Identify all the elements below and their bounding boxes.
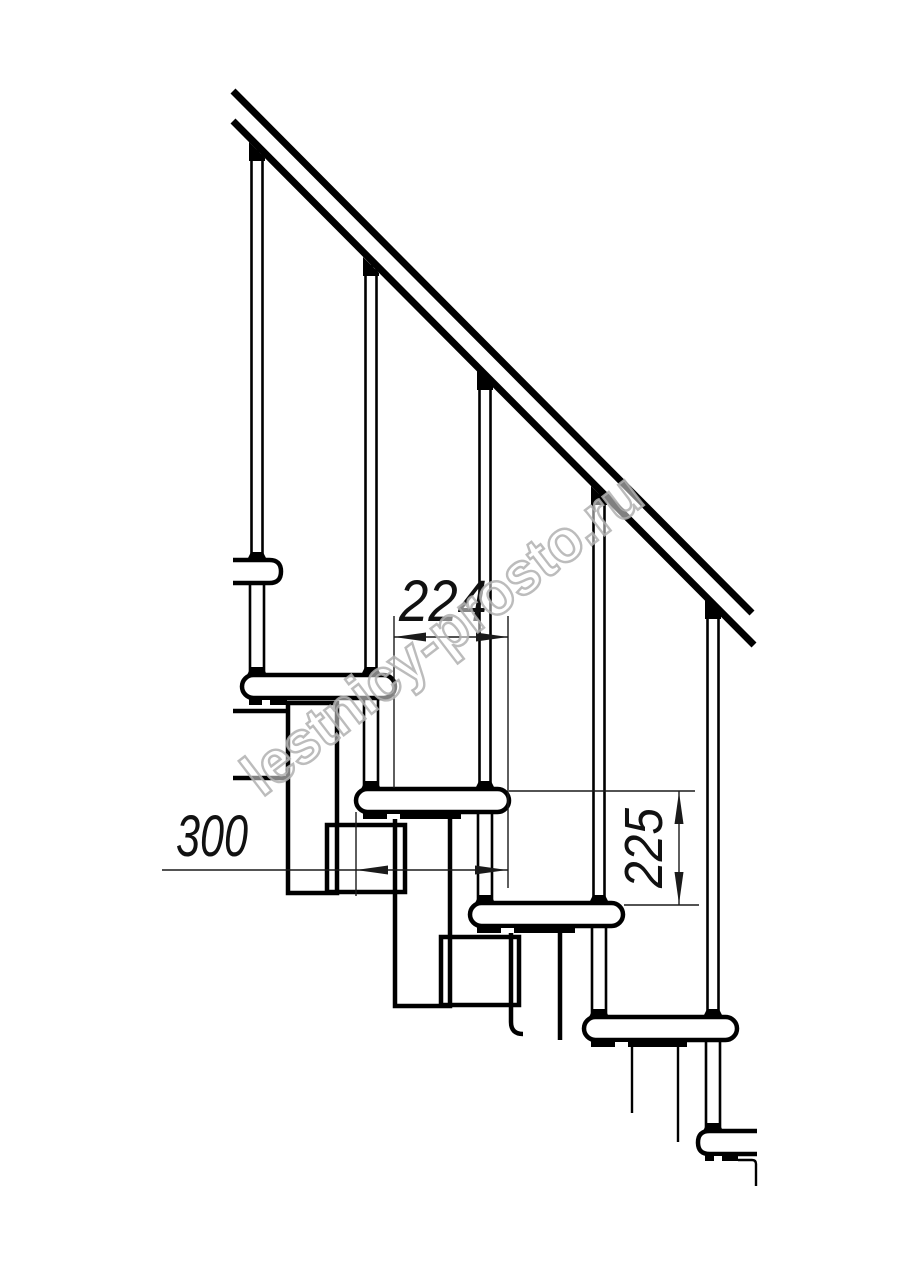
handrail-top-line — [233, 91, 752, 613]
baluster-4 — [592, 495, 606, 1017]
baluster-1 — [250, 151, 264, 675]
tread-3 — [470, 903, 623, 926]
dimension-label-300: 300 — [176, 804, 248, 869]
tread-2 — [356, 789, 509, 812]
staircase-drawing-page: 224 300 225 lestnicy-prosto.ru — [0, 0, 914, 1280]
staircase-drawing-svg: 224 300 225 lestnicy-prosto.ru — [0, 0, 914, 1280]
module-fragment-line-3 — [738, 1160, 756, 1186]
tread-5-cut — [698, 1131, 757, 1154]
tread-0-cut — [233, 560, 281, 583]
module-box-2 — [441, 937, 519, 1005]
watermark-text: lestnicy-prosto.ru — [229, 460, 655, 808]
arrow-down-icon — [675, 872, 684, 904]
baluster-5 — [706, 609, 720, 1131]
dimension-label-225: 225 — [614, 807, 674, 889]
arrow-left-icon — [356, 866, 388, 875]
tread-4 — [584, 1017, 737, 1040]
arrow-up-icon — [675, 792, 684, 824]
